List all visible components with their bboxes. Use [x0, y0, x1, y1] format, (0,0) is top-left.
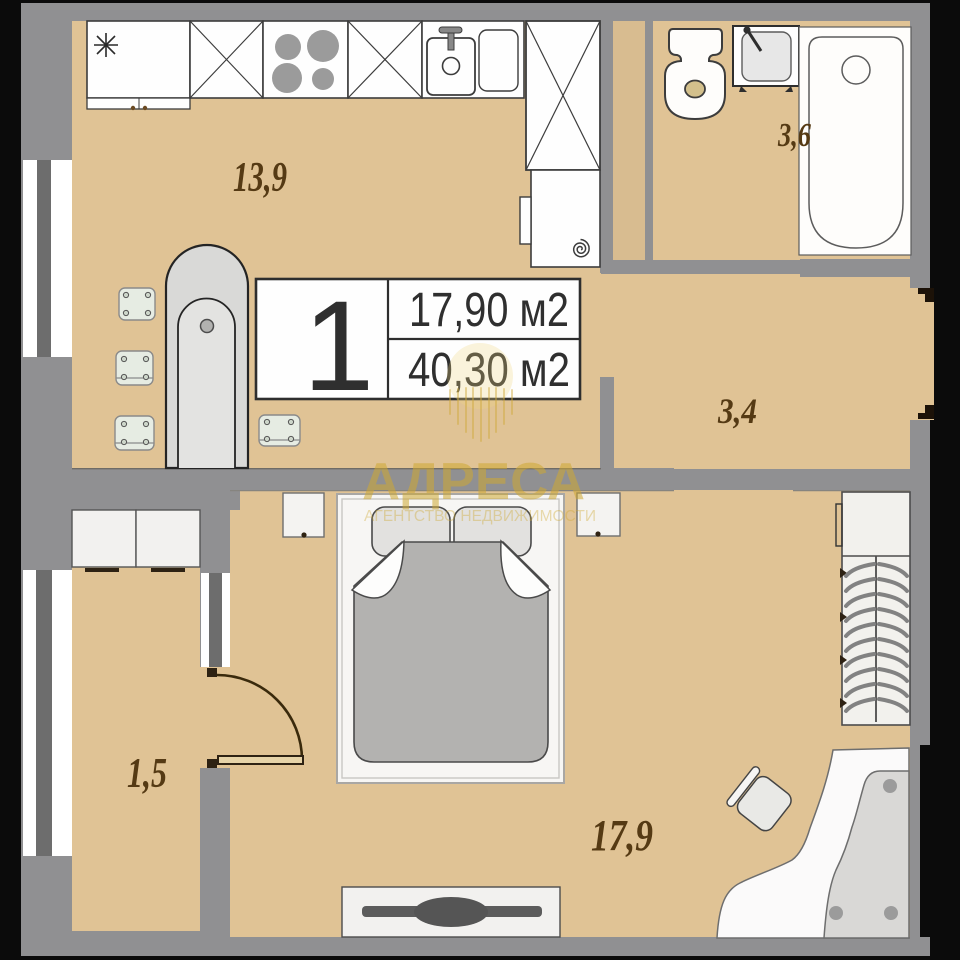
svg-text:1,5: 1,5 [127, 751, 167, 797]
svg-text:17,9: 17,9 [591, 811, 653, 860]
svg-text:3,4: 3,4 [717, 391, 757, 431]
svg-text:АГЕНТСТВО НЕДВИЖИМОСТИ: АГЕНТСТВО НЕДВИЖИМОСТИ [364, 508, 596, 525]
svg-text:17,90 м2: 17,90 м2 [409, 284, 569, 337]
svg-text:13,9: 13,9 [233, 155, 287, 201]
svg-text:АДРЕСА: АДРЕСА [362, 453, 585, 511]
svg-text:3,6: 3,6 [777, 117, 811, 154]
svg-text:1: 1 [303, 275, 374, 418]
